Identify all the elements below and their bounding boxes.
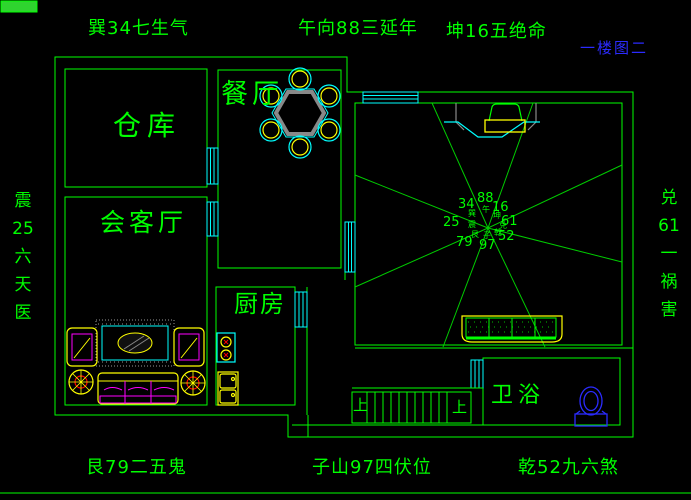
label-left-vertical: 震 25 六 天 医	[10, 193, 36, 333]
door-storage-dining	[207, 148, 218, 184]
planter	[462, 316, 562, 342]
corner-block	[1, 1, 37, 12]
door-living-dining	[207, 202, 218, 236]
armchair-left	[67, 328, 97, 366]
stairs-up-label-right: 上	[452, 400, 467, 415]
label-top-center: 午向88三延年	[298, 20, 418, 38]
label-top-left: 巽34七生气	[88, 20, 189, 38]
center-num-e: 25	[443, 216, 460, 229]
center-char-s: 午	[482, 206, 490, 214]
room-label-storage: 仓库	[113, 112, 181, 140]
label-bottom-left: 艮79二五鬼	[86, 459, 187, 477]
center-char-se: 巽	[468, 210, 476, 218]
center-char-nw: 乾	[494, 229, 502, 237]
center-char-e: 震	[468, 221, 476, 229]
compass-lines	[355, 103, 622, 347]
window-top	[363, 92, 418, 103]
door-bathroom	[471, 360, 483, 388]
door-kitchen	[295, 292, 307, 327]
window-dining-bigroom	[345, 222, 355, 272]
cad-canvas[interactable]: 巽34七生气 午向88三延年 坤16五绝命 艮79二五鬼 子山97四伏位 乾52…	[0, 0, 691, 500]
toilet	[575, 387, 607, 426]
label-bottom-center: 子山97四伏位	[312, 459, 432, 477]
rug	[96, 320, 174, 366]
room-label-kitchen: 厨房	[234, 292, 286, 316]
label-bottom-right: 乾52九六煞	[518, 459, 619, 477]
windows	[207, 92, 483, 388]
room-label-living: 会客厅	[100, 210, 187, 235]
plant-left	[69, 370, 93, 394]
sofa-set	[67, 320, 205, 404]
floorplan-drawing	[0, 0, 691, 500]
sofa	[98, 373, 178, 404]
drawing-title: 一楼图二	[580, 41, 648, 56]
plant-right	[181, 371, 205, 395]
center-char-n: 子	[483, 232, 491, 240]
altar	[444, 103, 540, 137]
center-char-sw: 坤	[493, 212, 501, 220]
center-char-ne: 艮	[471, 231, 479, 239]
kitchen-sink	[218, 372, 238, 405]
stove	[217, 333, 235, 362]
armchair-right	[174, 328, 204, 366]
room-label-bathroom: 卫浴	[491, 385, 545, 407]
stairs-up-label-left: 上	[353, 398, 368, 413]
label-top-right: 坤16五绝命	[446, 23, 547, 41]
center-num-n: 97	[479, 239, 496, 252]
label-right-vertical: 兑 61 一 祸 害	[656, 190, 682, 330]
room-label-dining: 餐厅	[221, 81, 283, 108]
